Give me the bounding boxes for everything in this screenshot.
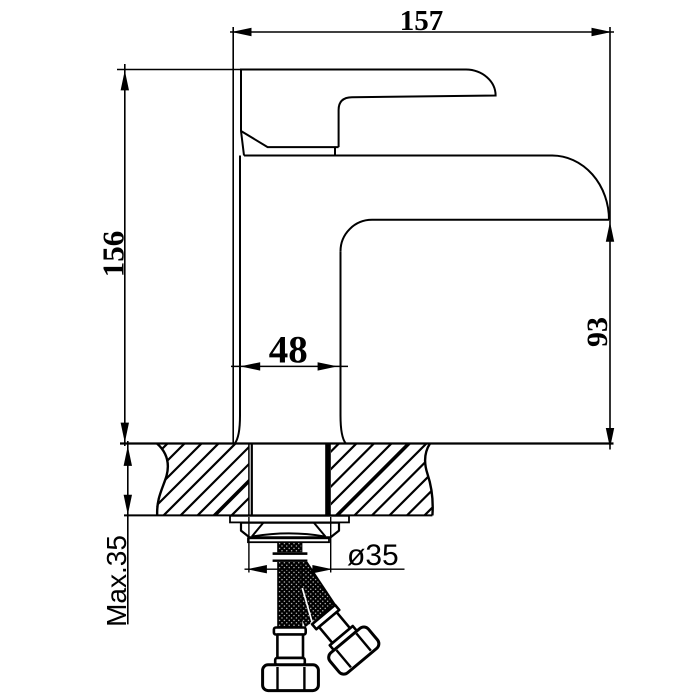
svg-text:93: 93 [581,317,614,347]
svg-text:156: 156 [95,231,130,278]
svg-text:ø35: ø35 [347,539,399,572]
svg-text:Max.35: Max.35 [101,535,132,627]
svg-text:157: 157 [400,5,444,37]
svg-text:48: 48 [269,329,308,372]
